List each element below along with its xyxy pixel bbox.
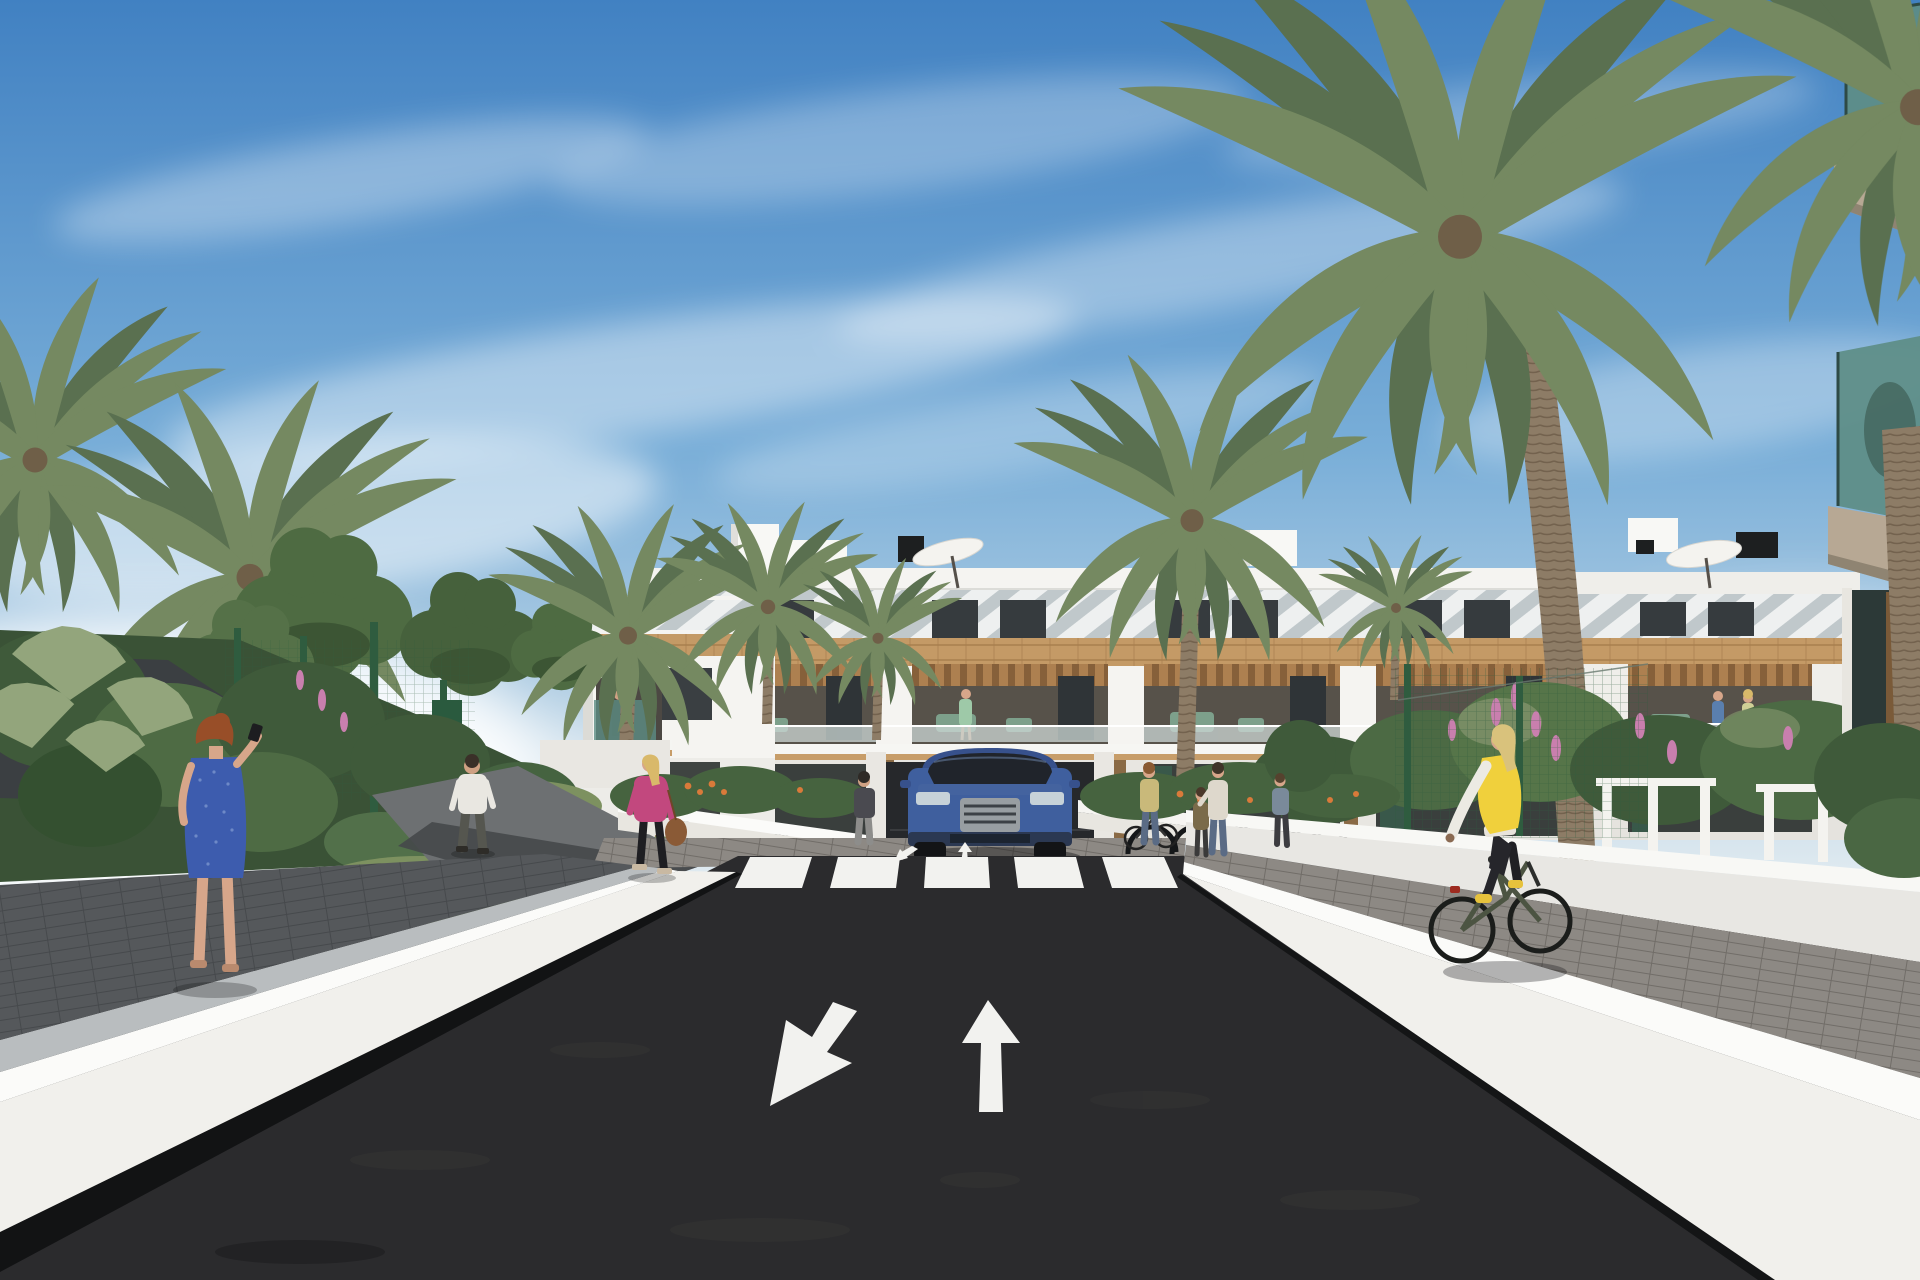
blue-suv xyxy=(898,748,1082,869)
handbag xyxy=(665,818,687,846)
scene-render xyxy=(0,0,1920,1280)
mesh-fence-right xyxy=(1395,664,1648,838)
zebra-crosswalk xyxy=(735,857,1178,888)
render-stage xyxy=(0,0,1920,1280)
